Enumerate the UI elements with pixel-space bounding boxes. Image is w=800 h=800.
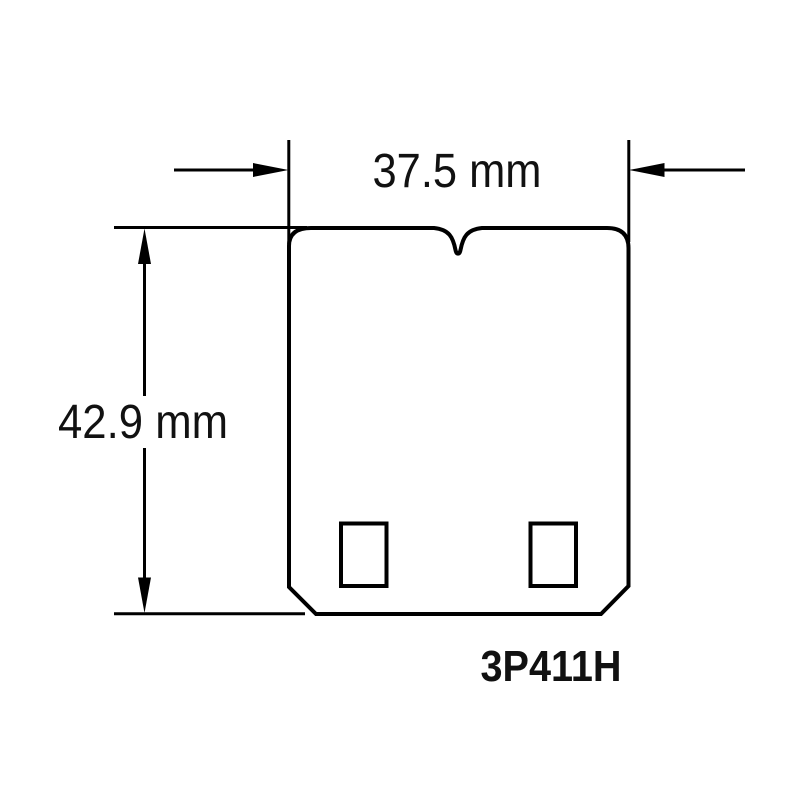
svg-text:3P411H: 3P411H xyxy=(481,642,622,691)
svg-text:37.5 mm: 37.5 mm xyxy=(373,145,542,198)
svg-text:42.9 mm: 42.9 mm xyxy=(58,396,228,449)
